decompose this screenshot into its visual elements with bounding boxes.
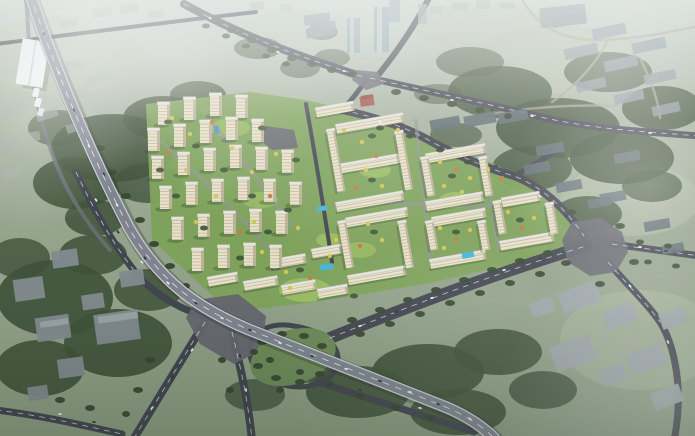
screenshot-root: Aerial 3D rendering of a residential mas… [0, 0, 695, 436]
atmospheric-haze-top [0, 0, 695, 120]
masterplan-aerial-render [0, 0, 695, 436]
vignette-bottom [0, 300, 695, 436]
